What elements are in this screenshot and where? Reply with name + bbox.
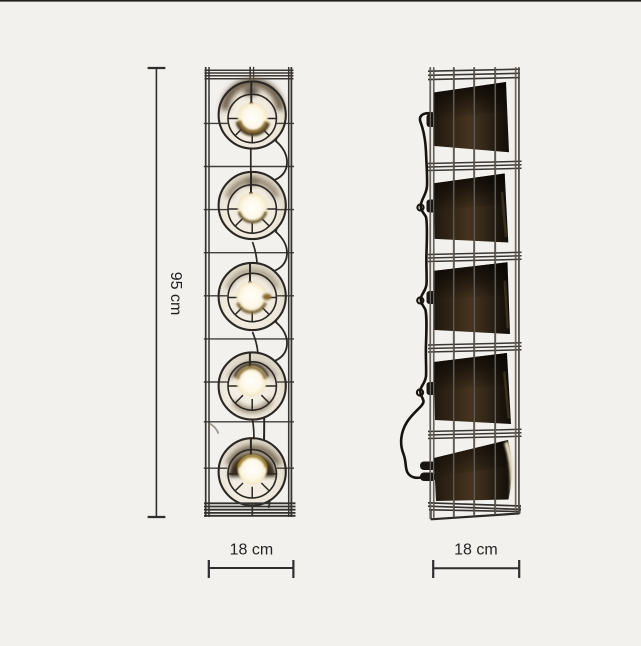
svg-text:18 cm: 18 cm (454, 542, 498, 559)
svg-text:95 cm: 95 cm (167, 272, 184, 316)
svg-text:18 cm: 18 cm (230, 542, 274, 559)
